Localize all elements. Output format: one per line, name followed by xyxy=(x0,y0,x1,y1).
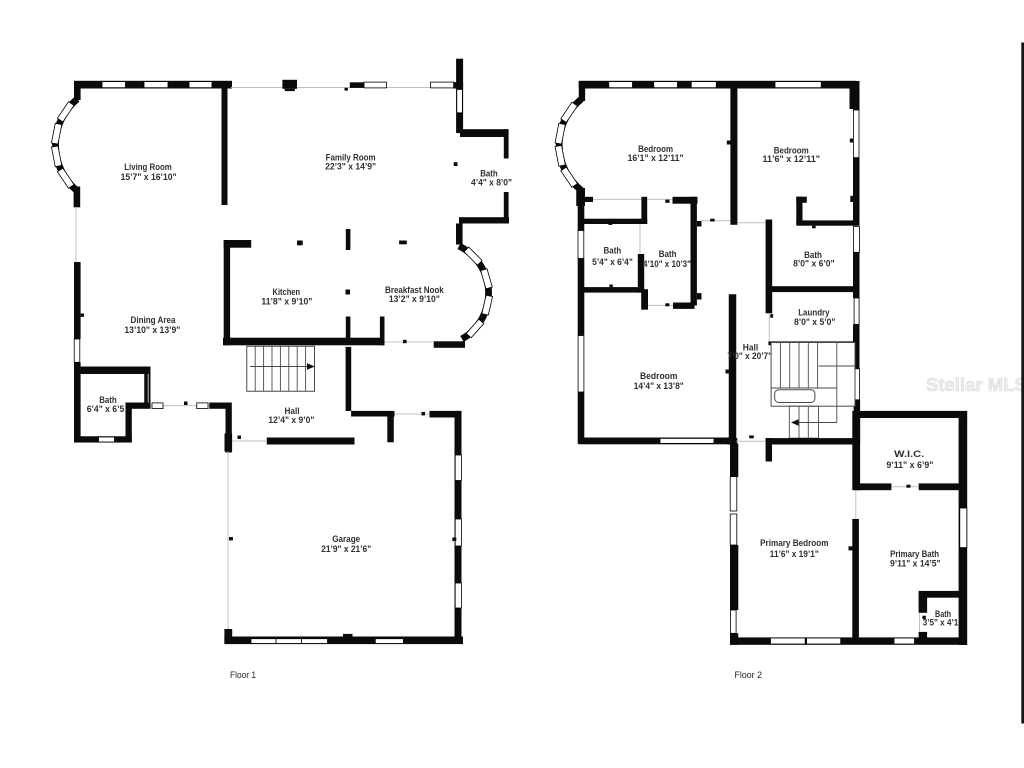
svg-text:21’9" x 21’6": 21’9" x 21’6" xyxy=(321,544,371,555)
svg-text:Floor 2: Floor 2 xyxy=(735,670,763,681)
svg-text:14’4" x 13’8": 14’4" x 13’8" xyxy=(634,381,684,392)
svg-text:16’1" x 12’11": 16’1" x 12’11" xyxy=(628,153,684,164)
svg-text:W.I.C.: W.I.C. xyxy=(894,449,924,460)
svg-text:8’0" x 5’0": 8’0" x 5’0" xyxy=(794,317,836,328)
svg-text:9’11" x 14’5": 9’11" x 14’5" xyxy=(890,559,941,570)
svg-text:13’2" x 9’10": 13’2" x 9’10" xyxy=(389,294,440,305)
svg-text:6’4" x 6’5: 6’4" x 6’5 xyxy=(87,404,125,415)
svg-text:Primary Bedroom: Primary Bedroom xyxy=(760,538,828,549)
svg-text:3’5" x 4’1: 3’5" x 4’1 xyxy=(923,618,959,629)
svg-text:13’10" x 13’9": 13’10" x 13’9" xyxy=(124,325,180,336)
svg-text:Floor 1: Floor 1 xyxy=(230,670,256,681)
svg-text:12’4" x 9’0": 12’4" x 9’0" xyxy=(268,415,314,426)
svg-text:11’6" x 19’1": 11’6" x 19’1" xyxy=(770,549,819,560)
svg-text:11’8" x 9’10": 11’8" x 9’10" xyxy=(261,296,312,307)
svg-text:4’10" x 10’3": 4’10" x 10’3" xyxy=(643,259,691,270)
svg-text:11’6" x 12’11": 11’6" x 12’11" xyxy=(763,154,821,165)
svg-text:7’0" x 20’7": 7’0" x 20’7" xyxy=(727,351,772,362)
svg-text:4’4" x 8’0": 4’4" x 8’0" xyxy=(471,178,512,189)
svg-text:8’0" x 6’0": 8’0" x 6’0" xyxy=(793,259,835,270)
svg-text:22’3" x 14’9": 22’3" x 14’9" xyxy=(325,162,376,173)
svg-text:Bath: Bath xyxy=(604,246,622,257)
svg-text:5’4" x 6’4": 5’4" x 6’4" xyxy=(592,257,633,268)
svg-text:15’7" x 16’10": 15’7" x 16’10" xyxy=(121,172,177,183)
svg-text:Stellar MLS: Stellar MLS xyxy=(926,374,1024,395)
svg-text:9’11" x 6’9": 9’11" x 6’9" xyxy=(886,460,933,471)
